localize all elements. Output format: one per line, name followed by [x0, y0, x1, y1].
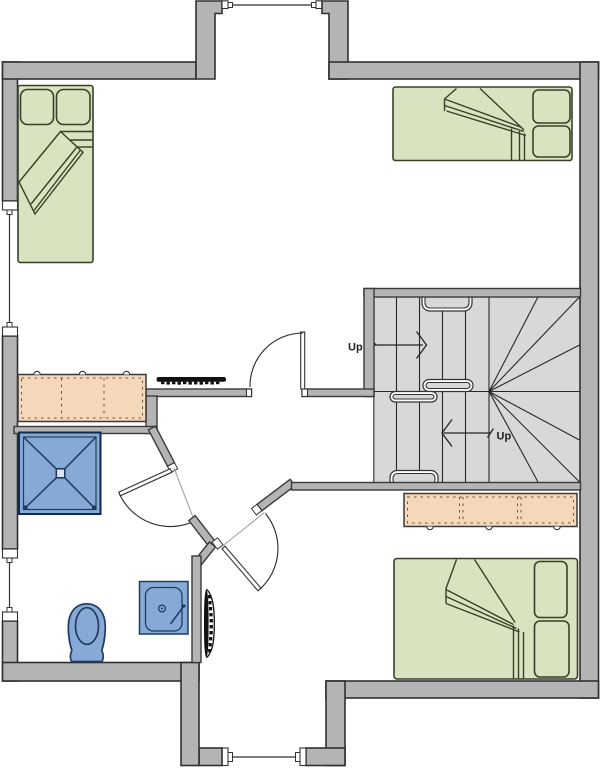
svg-text:Up: Up	[497, 431, 512, 443]
svg-text:Up: Up	[348, 342, 363, 354]
